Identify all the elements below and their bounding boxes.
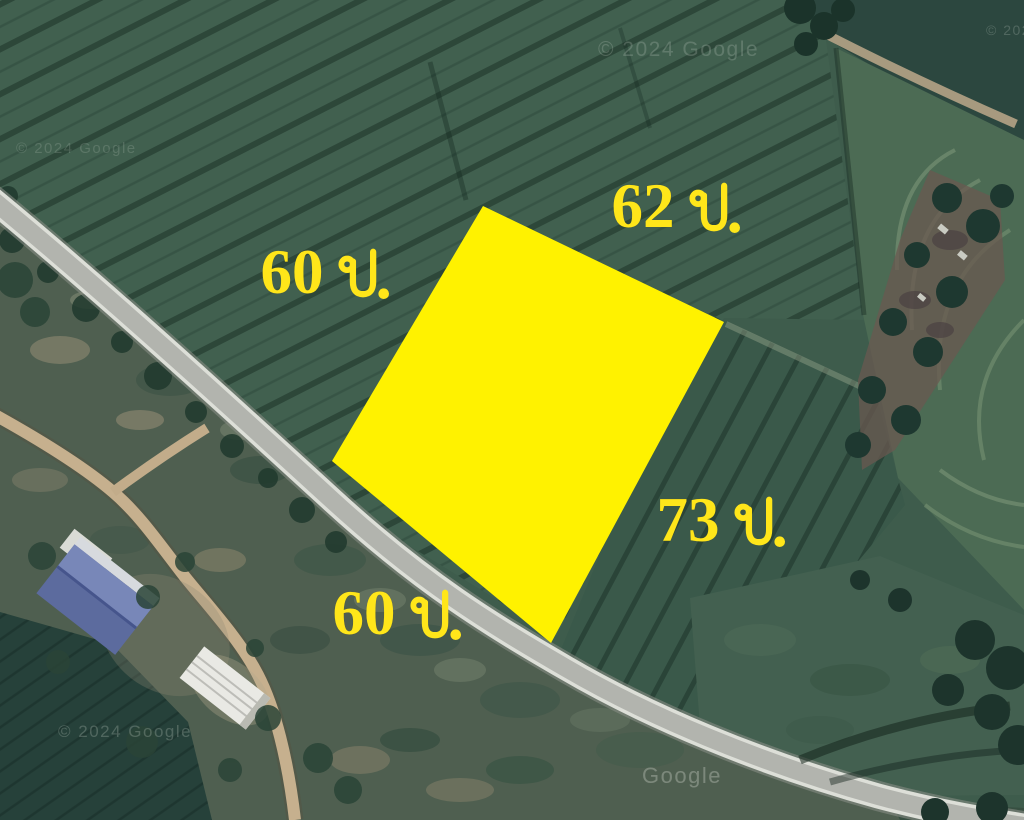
- satellite-map-image: 60 62 73 60 © 2024 Google © 2024: [0, 0, 1024, 820]
- satellite-basemap: [0, 0, 1024, 820]
